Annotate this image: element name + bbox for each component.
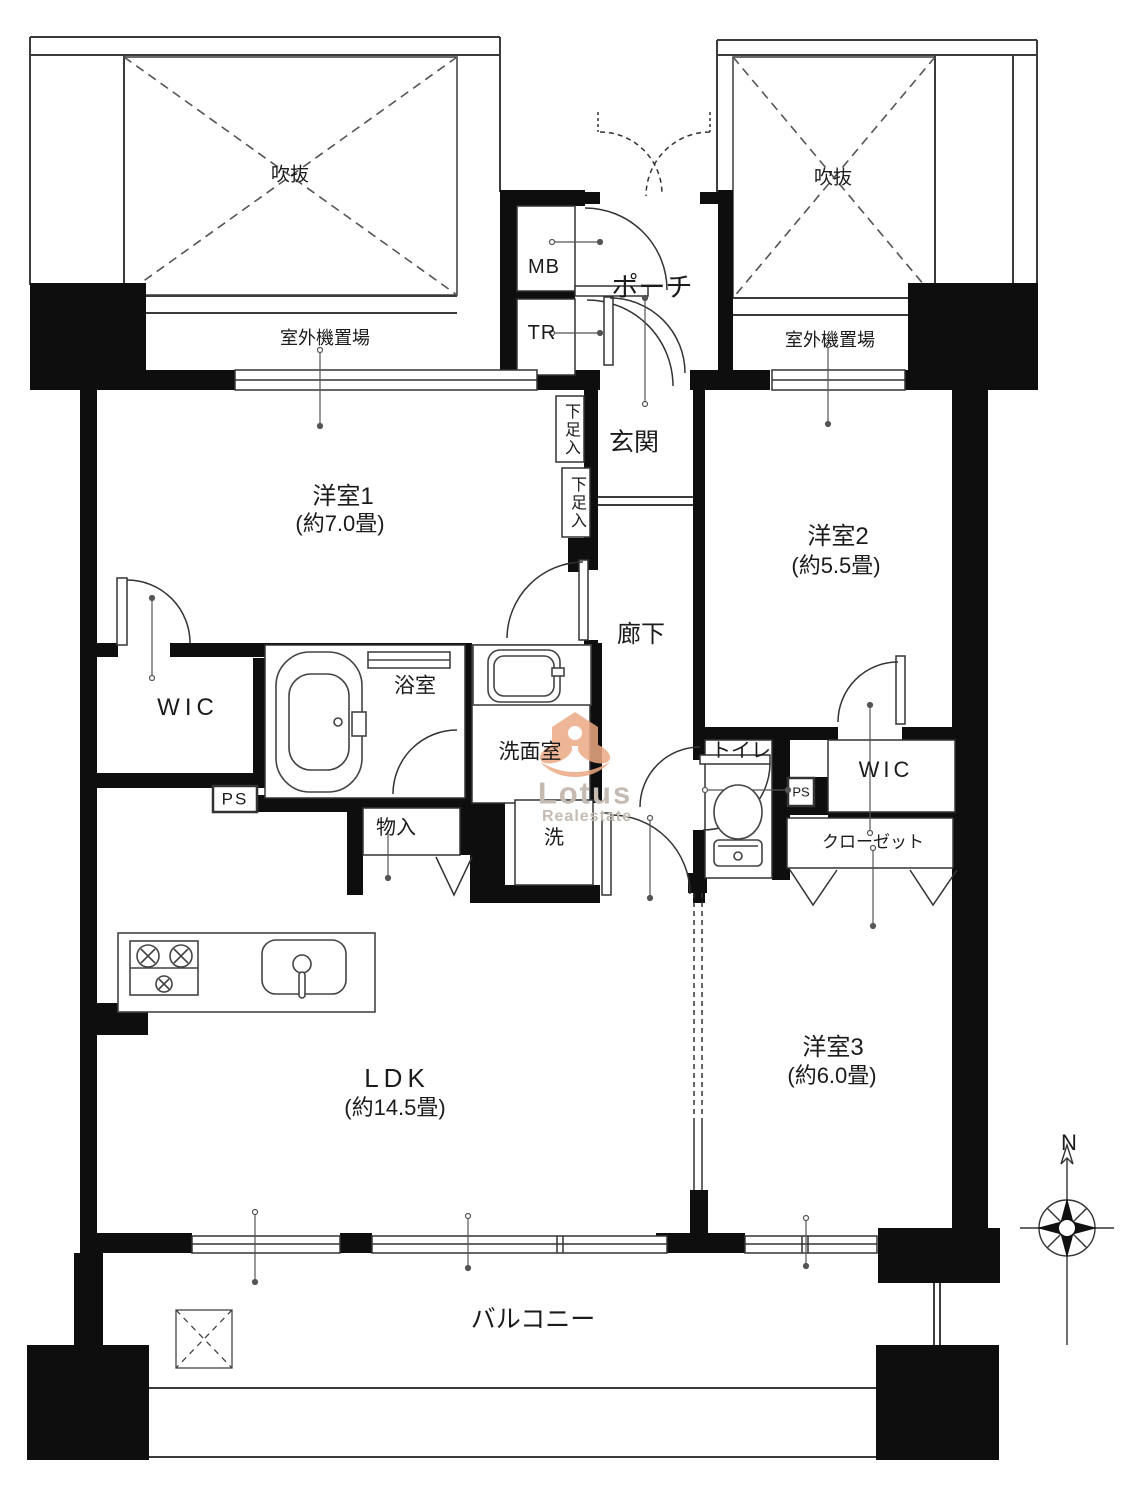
- outdoor-unit-right-label: 室外機置場: [785, 331, 875, 349]
- porch-gate-right-arc: [646, 132, 710, 196]
- window-room3-bottom: [745, 1236, 877, 1253]
- faucet-icon: [293, 955, 311, 973]
- kitchen-counter-icon: [118, 933, 375, 1012]
- void-left-label: 吹抜: [271, 166, 309, 185]
- closet-label: クローゼット: [822, 834, 924, 851]
- entrance-label: 玄関: [609, 431, 659, 456]
- floorplan-page: 吹抜 吹抜 室外機置場 室外機置場 MB TR ポーチ 玄関 下足入 下足入 洋…: [0, 0, 1148, 1500]
- watermark-subtitle: Realestate: [542, 809, 632, 825]
- compass-icon: [1020, 1145, 1114, 1345]
- ps-left-label: PS: [222, 791, 249, 808]
- room2-name-label: 洋室2: [807, 525, 868, 549]
- toilet-door-arc: [640, 747, 700, 807]
- bathroom-label: 浴室: [394, 676, 436, 697]
- window-room2-top: [772, 370, 905, 390]
- tr-label: TR: [528, 323, 557, 343]
- entry-door-arc: [610, 298, 685, 373]
- wic-right-door-leaf: [896, 656, 905, 724]
- room1-name-label: 洋室1: [312, 485, 373, 509]
- room3-size-label: (約6.0畳): [787, 1065, 876, 1087]
- washbasin-icon: [473, 645, 591, 705]
- storage-small-label: 物入: [376, 818, 416, 838]
- window-room1-top: [235, 370, 537, 390]
- wic-right-door-arc: [838, 662, 898, 722]
- ldk-door-leaf: [602, 813, 611, 895]
- room1-door-arc: [507, 562, 583, 638]
- room2-size-label: (約5.5畳): [791, 555, 880, 577]
- bathtub-icon: [276, 652, 366, 792]
- shoe-upper-label: 下足入: [562, 403, 578, 457]
- entry-door-leaf: [604, 297, 613, 365]
- mb-label: MB: [528, 257, 560, 277]
- closet-fold-door-left: [790, 870, 837, 905]
- mb-box: [517, 206, 575, 291]
- porch-label: ポーチ: [612, 275, 693, 302]
- outdoor-unit-left-label: 室外機置場: [280, 329, 370, 347]
- washroom-label: 洗面室: [499, 742, 562, 763]
- void-right-label: 吹抜: [814, 169, 852, 188]
- sliding-partition: [694, 893, 702, 1190]
- balcony-hatch-square: [176, 1310, 232, 1368]
- porch-gate-left-arc: [600, 132, 662, 194]
- watermark-title: Lotus: [538, 778, 632, 809]
- room1-door-leaf: [579, 560, 588, 640]
- window-ldk-long: [372, 1236, 667, 1253]
- wic-left-door-arc: [127, 580, 190, 643]
- wic-right-label: WIC: [859, 759, 914, 781]
- room3-name-label: 洋室3: [802, 1036, 863, 1060]
- shoe-lower-label: 下足入: [568, 476, 584, 530]
- ps-right-label: PS: [792, 786, 809, 799]
- ldk-size-label: (約14.5畳): [344, 1097, 445, 1119]
- room1-size-label: (約7.0畳): [295, 513, 384, 535]
- wic-left-label: WIC: [157, 696, 219, 720]
- floorplan-drawing: [0, 0, 1148, 1500]
- compass-north-label: N: [1061, 1132, 1077, 1154]
- toilet-label: トイレ: [711, 741, 771, 761]
- ldk-name-label: LDK: [364, 1065, 430, 1091]
- toilet-icon: [714, 785, 762, 866]
- laundry-label: 洗: [544, 828, 564, 848]
- balcony-label: バルコニー: [471, 1308, 596, 1333]
- window-ldk-small: [192, 1236, 340, 1253]
- hallway-label: 廊下: [617, 623, 665, 647]
- closet-fold-door-right: [910, 870, 957, 905]
- storage-fold-door: [436, 857, 472, 895]
- wic-left-door-leaf: [117, 578, 127, 645]
